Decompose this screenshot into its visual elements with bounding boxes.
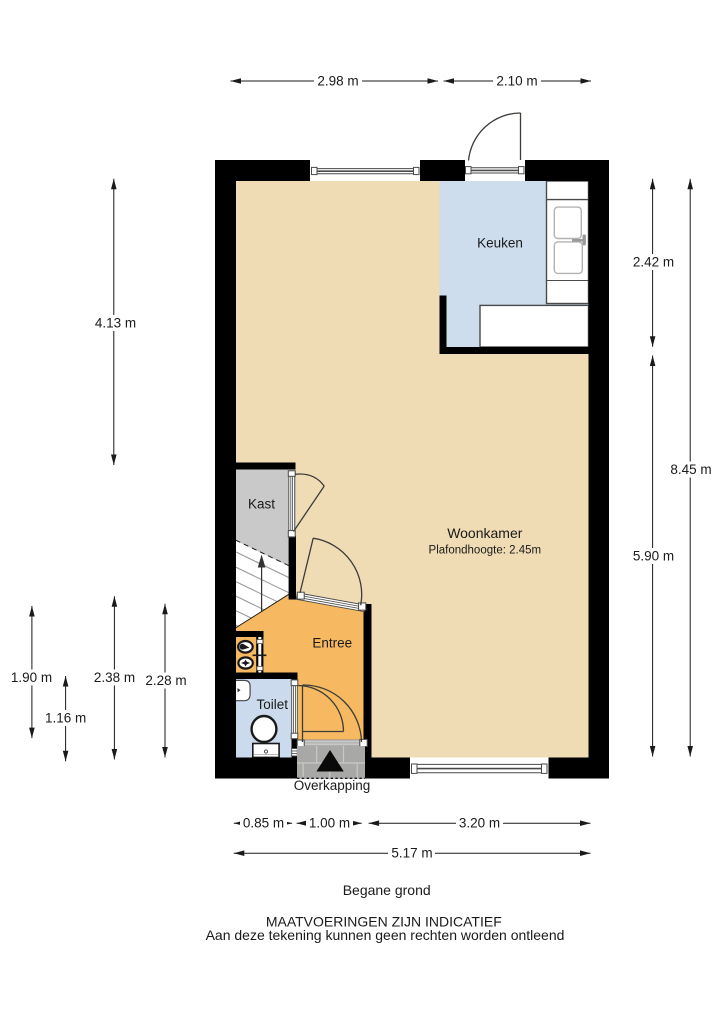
svg-text:1.16 m: 1.16 m xyxy=(45,711,86,726)
svg-text:Entree: Entree xyxy=(312,636,352,651)
svg-text:Kast: Kast xyxy=(248,497,275,512)
svg-text:1.00 m: 1.00 m xyxy=(309,816,350,831)
svg-text:2.38 m: 2.38 m xyxy=(94,670,135,685)
svg-text:2.28 m: 2.28 m xyxy=(145,673,186,688)
svg-text:5.17 m: 5.17 m xyxy=(391,846,432,861)
svg-text:0.85 m: 0.85 m xyxy=(243,816,284,831)
svg-text:1.90 m: 1.90 m xyxy=(11,670,52,685)
svg-text:Aan deze tekening kunnen geen: Aan deze tekening kunnen geen rechten wo… xyxy=(206,927,565,943)
svg-text:4.13 m: 4.13 m xyxy=(95,316,136,331)
svg-text:Toilet: Toilet xyxy=(256,697,288,712)
svg-text:Plafondhoogte: 2.45m: Plafondhoogte: 2.45m xyxy=(429,544,542,556)
svg-text:Woonkamer: Woonkamer xyxy=(447,525,523,541)
svg-text:2.10 m: 2.10 m xyxy=(496,74,537,89)
svg-text:Begane grond: Begane grond xyxy=(343,882,431,898)
svg-text:2.98 m: 2.98 m xyxy=(317,74,358,89)
svg-text:8.45 m: 8.45 m xyxy=(670,462,711,477)
svg-text:Overkapping: Overkapping xyxy=(294,778,371,793)
svg-text:3.20 m: 3.20 m xyxy=(459,816,500,831)
svg-text:Keuken: Keuken xyxy=(477,236,523,251)
svg-text:5.90 m: 5.90 m xyxy=(633,549,674,564)
svg-text:2.42 m: 2.42 m xyxy=(633,255,674,270)
